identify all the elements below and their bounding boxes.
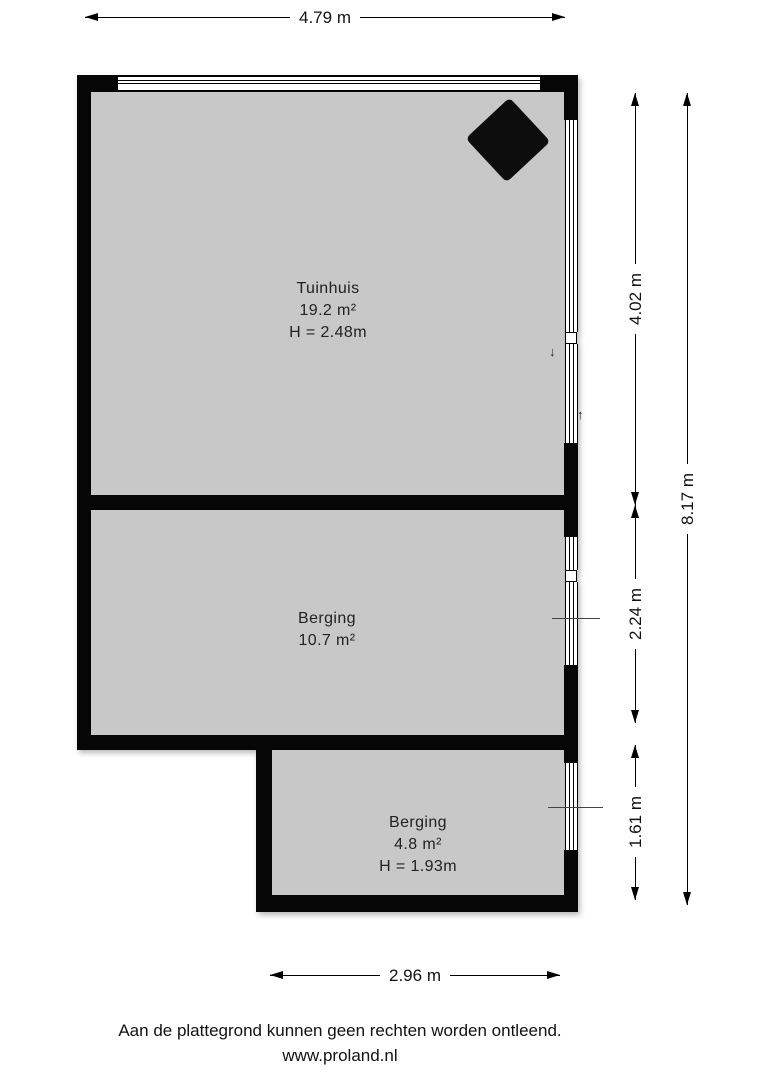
wall-segment-divider-tuinhuis-berging: [77, 495, 578, 510]
arrowhead-down-icon: [631, 492, 639, 505]
wall-segment-small-bottom: [256, 895, 578, 912]
arrowhead-left-icon: [85, 13, 98, 21]
wall-segment-small-right-top: [564, 750, 578, 763]
door-direction-up-icon: ↑: [577, 408, 584, 421]
room-label-berging: Berging 10.7 m²: [298, 608, 356, 652]
arrowhead-right-icon: [547, 971, 560, 979]
arrowhead-down-icon: [631, 710, 639, 723]
room-height: H = 2.48m: [289, 322, 367, 344]
arrowhead-up-icon: [631, 93, 639, 106]
wall-segment-right-corner: [564, 75, 578, 120]
sill-marker-line: [552, 618, 600, 619]
room-name: Tuinhuis: [289, 278, 367, 300]
footer: Aan de plattegrond kunnen geen rechten w…: [0, 1018, 680, 1068]
arrowhead-up-icon: [631, 505, 639, 518]
room-area: 10.7 m²: [298, 630, 356, 652]
dimension-label: 1.61 m: [626, 787, 646, 857]
floorplan-shapes: [0, 0, 764, 1080]
arrowhead-right-icon: [552, 13, 565, 21]
door-direction-down-icon: ↓: [549, 345, 556, 358]
wall-segment-small-right-bottom: [564, 850, 578, 912]
wall-segment-left: [77, 75, 91, 750]
window-pane: [569, 344, 574, 443]
window-pane: [569, 582, 574, 665]
window-right-lower: [565, 344, 578, 443]
window-pane: [569, 537, 574, 570]
arrowhead-up-icon: [683, 93, 691, 106]
wall-segment-right-mid: [564, 443, 578, 537]
window-berging-upper: [565, 537, 578, 570]
room-name: Berging: [379, 812, 457, 834]
room-area: 4.8 m²: [379, 834, 457, 856]
room-label-berging-small: Berging 4.8 m² H = 1.93m: [379, 812, 457, 878]
arrowhead-left-icon: [270, 971, 283, 979]
footer-website: www.proland.nl: [0, 1043, 680, 1068]
dimension-label: 2.96 m: [380, 966, 450, 986]
wall-segment-small-left: [256, 750, 272, 912]
room-area: 19.2 m²: [289, 300, 367, 322]
wall-segment-divider-berging: [77, 735, 578, 750]
dimension-label: 8.17 m: [678, 464, 698, 534]
window-berging-lower: [565, 582, 578, 665]
room-label-tuinhuis: Tuinhuis 19.2 m² H = 2.48m: [289, 278, 367, 344]
room-name: Berging: [298, 608, 356, 630]
arrowhead-down-icon: [631, 887, 639, 900]
arrowhead-up-icon: [631, 745, 639, 758]
window-mullion: [565, 332, 577, 344]
dimension-label: 4.79 m: [290, 8, 360, 28]
window-top: [118, 76, 540, 91]
window-pane: [118, 80, 540, 84]
dimension-label: 4.02 m: [626, 264, 646, 334]
sill-marker-line: [548, 807, 603, 808]
dimension-label: 2.24 m: [626, 579, 646, 649]
window-right-upper: [565, 120, 578, 332]
arrowhead-down-icon: [683, 892, 691, 905]
window-mullion: [565, 570, 577, 582]
room-height: H = 1.93m: [379, 856, 457, 878]
footer-disclaimer: Aan de plattegrond kunnen geen rechten w…: [0, 1018, 680, 1043]
floorplan-canvas: ↓ ↑ Tuinhuis 19.2 m² H = 2.48m Berging 1…: [0, 0, 764, 1080]
window-pane: [569, 120, 574, 332]
